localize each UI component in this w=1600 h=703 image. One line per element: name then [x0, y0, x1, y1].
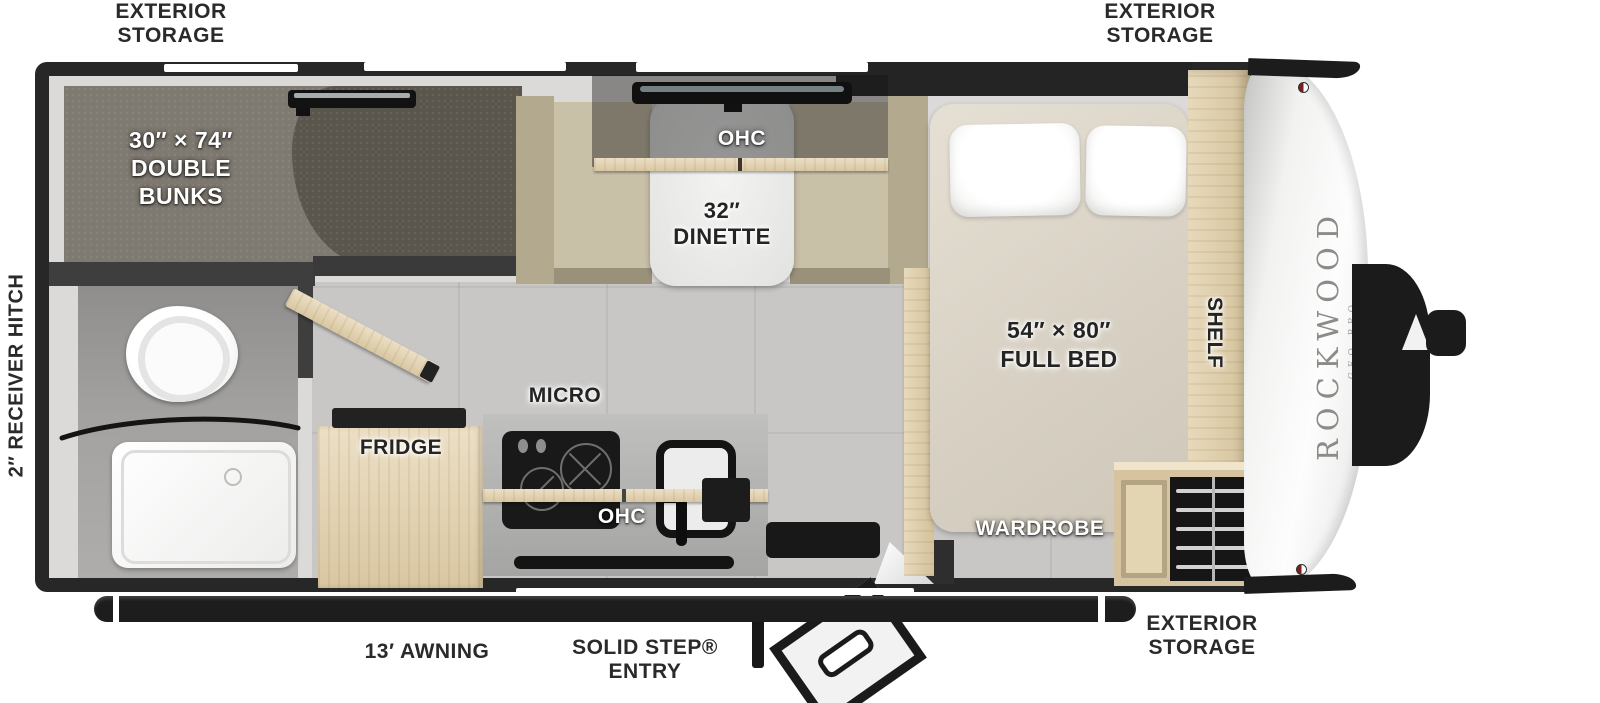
- cooktop-knob-2: [536, 439, 546, 453]
- full-bed-label: 54″ × 80″ FULL BED: [930, 316, 1188, 374]
- front-shelf-column: [1188, 70, 1250, 484]
- exterior-storage-label-top-left: EXTERIOR STORAGE: [81, 0, 261, 48]
- dinette-window: [632, 82, 852, 104]
- marker-light-top: [1298, 82, 1309, 93]
- bunk-window: [288, 90, 416, 108]
- kitchen-ohc-label: OHC: [570, 505, 674, 529]
- awning-gap-right: [1098, 596, 1105, 622]
- hitch-coupler: [1426, 310, 1466, 356]
- kitchen-towel-bar: [514, 556, 734, 569]
- front-top-wall: [836, 62, 1192, 96]
- bunk-window-glass: [294, 93, 410, 98]
- wire-post: [1212, 477, 1215, 581]
- wardrobe-label: WARDROBE: [945, 517, 1135, 541]
- counter-end-box: [702, 478, 750, 522]
- shower-curtain-rod: [58, 414, 302, 442]
- fridge-label: FRIDGE: [326, 436, 476, 460]
- sink-faucet: [676, 496, 687, 546]
- kitchen-shelf-notch: [622, 489, 626, 502]
- awning-rod: [94, 596, 1136, 622]
- awning-label: 13′ AWNING: [342, 640, 512, 664]
- marker-light-bottom: [1296, 564, 1307, 575]
- bathtub-basin: [121, 450, 291, 564]
- bathtub-drain: [224, 468, 242, 486]
- kitchen-bottom-window-strip: [516, 588, 742, 595]
- floorplan-canvas: 30″ × 74″ DOUBLE BUNKS OHC 32″ DINETTE: [0, 0, 1600, 703]
- bunk-window-latch: [296, 108, 310, 116]
- solid-step-entry-label: SOLID STEP® ENTRY: [558, 636, 732, 684]
- bathtub: [112, 442, 296, 568]
- dinette-ohc-label: OHC: [700, 127, 784, 151]
- brand-name-text: ROCKWOOD: [1311, 208, 1345, 461]
- bathroom-top-wall: [49, 262, 315, 286]
- front-cap-trim-bottom: [1244, 573, 1357, 594]
- dinette-bench-right-back: [888, 96, 928, 284]
- double-bunks-label: 30″ × 74″ DOUBLE BUNKS: [86, 126, 276, 210]
- receiver-hitch-label-wrap: 2″ RECEIVER HITCH: [0, 200, 34, 550]
- shelf-label: SHELF: [1192, 278, 1236, 388]
- dinette-shelf-notch: [738, 158, 742, 171]
- receiver-hitch-label: 2″ RECEIVER HITCH: [6, 273, 29, 477]
- exterior-storage-label-top-right: EXTERIOR STORAGE: [1070, 0, 1250, 48]
- awning-gap-left: [113, 596, 119, 622]
- dinette-label: 32″ DINETTE: [650, 198, 794, 250]
- galley-exterior-window-strip: [364, 62, 566, 71]
- dinette-bench-left-base: [554, 268, 652, 284]
- toilet-seat: [138, 316, 230, 402]
- dinette-bench-left-back: [516, 96, 554, 284]
- entry-bench: [766, 522, 880, 558]
- fridge-top-flap: [332, 408, 466, 428]
- corner-cabinet-drawer: [1121, 480, 1167, 578]
- dinette-exterior-window-strip: [636, 62, 868, 72]
- bunk-area-shaded: [292, 86, 522, 266]
- propane-cover: [1352, 264, 1430, 466]
- dinette-window-glass: [640, 86, 844, 92]
- bed-pillow-left: [949, 123, 1081, 217]
- cooktop-knob-1: [518, 439, 528, 453]
- cooktop-burner-large: [560, 443, 612, 495]
- entry-door-window-strip: [738, 588, 914, 595]
- bunk-base-wall: [313, 256, 522, 276]
- dinette-bench-right-base: [790, 268, 890, 284]
- bunk-exterior-window-strip: [164, 64, 298, 72]
- exterior-storage-label-bottom-right: EXTERIOR STORAGE: [1112, 612, 1292, 660]
- bed-pillow-right: [1085, 125, 1187, 217]
- micro-label: MICRO: [503, 384, 627, 408]
- dinette-shelf-edge: [594, 158, 888, 171]
- solid-step-handle-slot: [815, 626, 877, 681]
- dinette-window-latch: [724, 103, 742, 112]
